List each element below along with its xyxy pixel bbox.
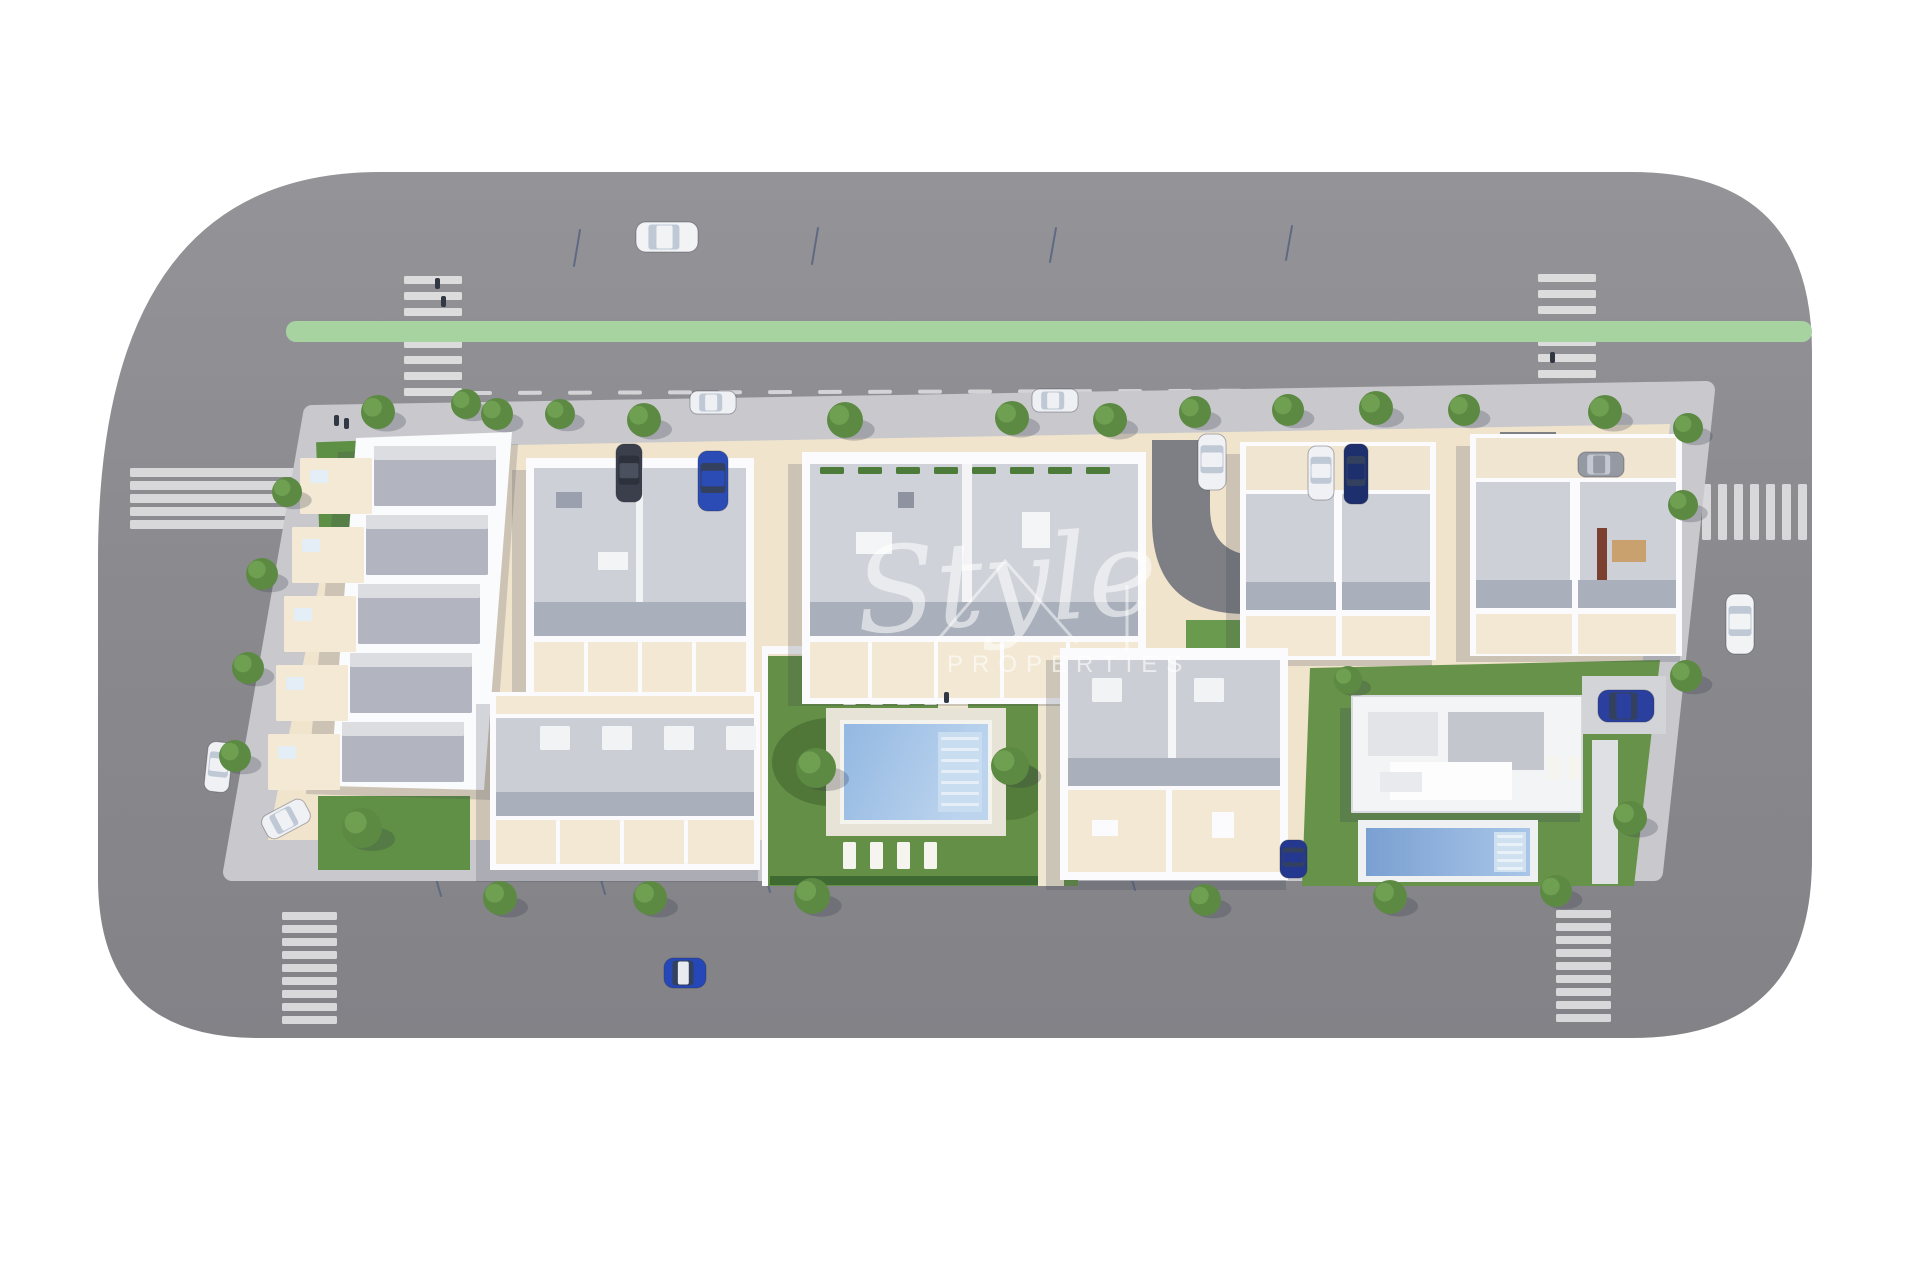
block-f-roof-shade xyxy=(1068,758,1280,786)
block-a-roof-table xyxy=(598,552,628,570)
villa-patio xyxy=(1448,712,1544,770)
block-b-roof-stair xyxy=(898,492,914,508)
block-e-walk xyxy=(496,696,754,714)
site-plan-render: Style PROPERTIES xyxy=(0,0,1920,1280)
scene-svg xyxy=(0,0,1920,1280)
car-gray-block-d xyxy=(1578,452,1624,477)
villa-dining xyxy=(1380,772,1422,792)
block-a-roof-shade xyxy=(534,602,746,636)
block-f-furniture xyxy=(1092,820,1118,836)
car-blue-bottom-road xyxy=(664,958,706,988)
block-e-terraces xyxy=(496,820,754,864)
pedestrian-1 xyxy=(435,278,440,289)
block-a-roof-unit xyxy=(556,492,582,508)
block-b-roof-lounge xyxy=(856,532,892,554)
block-b-roof-gap xyxy=(962,464,972,602)
crosswalk-bottom-right xyxy=(1556,910,1611,1022)
pedestrian-5 xyxy=(1550,352,1555,363)
van-dark-block-a xyxy=(616,444,642,502)
block-b-roof-lounge-2 xyxy=(1022,512,1050,548)
car-blue-block-a xyxy=(698,451,728,511)
car-white-block-c xyxy=(1308,446,1334,500)
car-white-loop xyxy=(1198,434,1226,490)
green-cycle-lane xyxy=(286,321,1812,342)
block-c-driveway xyxy=(1246,446,1430,490)
block-f-terrace-divider xyxy=(1166,790,1172,872)
block-d-divider xyxy=(1572,482,1578,654)
block-d-wood-post xyxy=(1597,528,1607,580)
car-white-right-road xyxy=(1726,594,1754,654)
scene-root xyxy=(98,172,1812,1038)
pedestrian-2 xyxy=(441,296,446,307)
car-white-top-road xyxy=(636,222,698,252)
car-blue-block-f xyxy=(1280,840,1307,878)
pedestrian-4 xyxy=(344,418,349,429)
garden-wall-west xyxy=(762,646,768,886)
villa-roof-deck xyxy=(1368,712,1438,756)
block-b-roof-shade xyxy=(810,602,1138,636)
car-navy-block-c xyxy=(1344,444,1368,504)
block-c-divider xyxy=(1336,494,1342,656)
block-d-driveway xyxy=(1476,438,1676,478)
block-e-roof-shade xyxy=(496,792,754,816)
car-white-parked-1 xyxy=(690,391,736,414)
crosswalk-bottom-left xyxy=(282,912,337,1024)
pedestrian-3 xyxy=(334,415,339,426)
block-f-furniture-2 xyxy=(1212,812,1234,838)
lawn-west xyxy=(318,796,470,870)
pedestrian-6 xyxy=(944,692,949,703)
block-d-wood-bench xyxy=(1612,540,1646,562)
car-white-parked-2 xyxy=(1032,389,1078,412)
car-blue-villa xyxy=(1598,690,1654,722)
